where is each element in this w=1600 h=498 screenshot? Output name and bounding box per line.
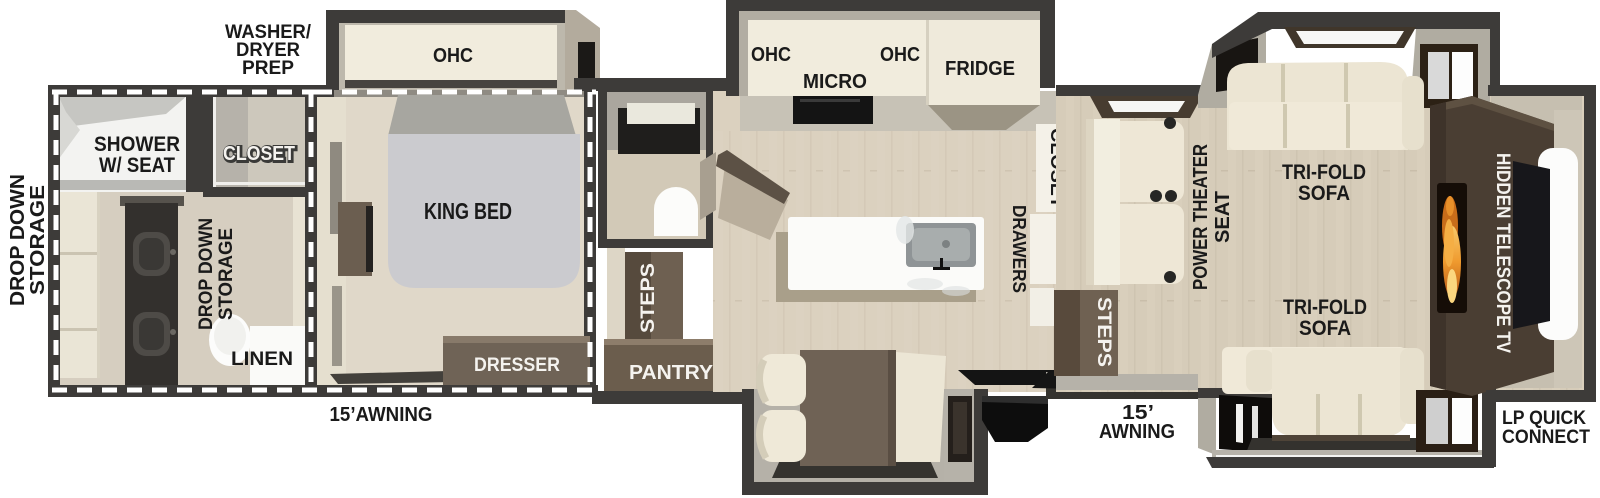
svg-text:STORAGE: STORAGE [27,185,49,295]
svg-text:CLOSET: CLOSET [223,143,295,165]
svg-text:SHOWER: SHOWER [94,133,180,156]
svg-text:W/ SEAT: W/ SEAT [99,154,175,177]
svg-text:HIDDEN TELESCOPE TV: HIDDEN TELESCOPE TV [1492,153,1513,353]
svg-text:PANTRY: PANTRY [629,362,714,384]
svg-text:SEAT: SEAT [1212,191,1234,243]
svg-text:LINEN: LINEN [231,349,293,370]
svg-text:FRIDGE: FRIDGE [945,58,1015,80]
svg-text:DROP DOWN: DROP DOWN [7,174,29,306]
svg-text:OHC: OHC [433,45,473,67]
svg-text:AWNING: AWNING [1099,421,1175,443]
svg-text:DROP DOWN: DROP DOWN [196,218,217,330]
svg-text:LP QUICK: LP QUICK [1502,408,1586,429]
svg-text:SOFA: SOFA [1299,317,1351,340]
svg-text:OHC: OHC [880,44,920,66]
svg-text:SOFA: SOFA [1298,182,1350,205]
svg-text:TRI-FOLD: TRI-FOLD [1283,296,1367,319]
svg-text:STEPS: STEPS [1093,297,1114,367]
svg-text:STORAGE: STORAGE [216,228,237,320]
svg-text:DRESSER: DRESSER [474,355,560,376]
svg-text:PREP: PREP [242,58,294,79]
svg-text:DRAWERS: DRAWERS [1009,205,1029,293]
svg-text:KING BED: KING BED [424,198,512,224]
svg-text:CONNECT: CONNECT [1502,427,1590,448]
svg-text:OHC: OHC [751,44,791,66]
svg-text:TRI-FOLD: TRI-FOLD [1282,161,1366,184]
svg-text:STEPS: STEPS [638,263,659,333]
svg-text:POWER THEATER: POWER THEATER [1190,144,1212,290]
svg-text:15’AWNING: 15’AWNING [330,404,433,426]
svg-text:MICRO: MICRO [803,71,867,93]
